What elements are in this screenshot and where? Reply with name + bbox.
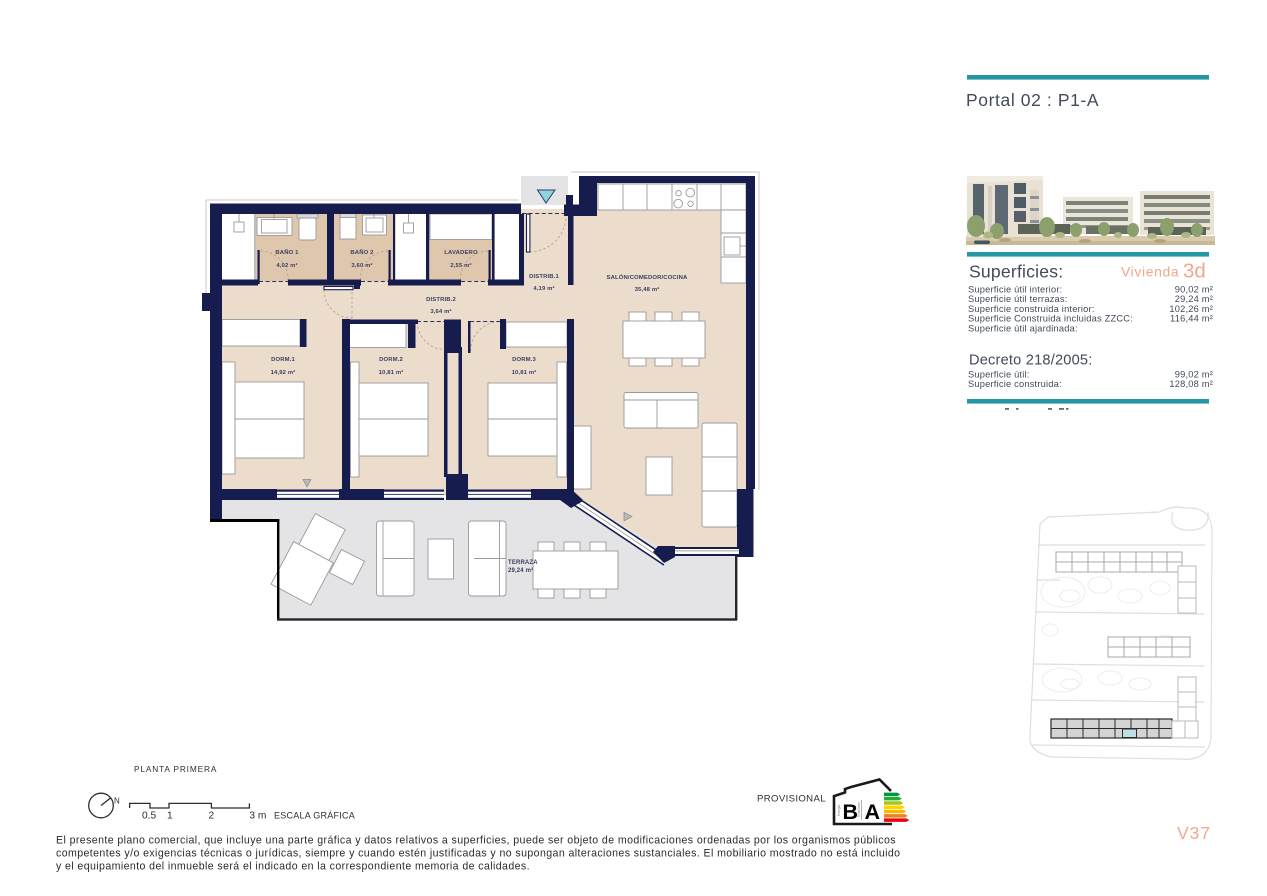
svg-text:PROVISIONAL: PROVISIONAL (757, 794, 826, 805)
svg-text:BAÑO 1: BAÑO 1 (275, 249, 299, 256)
svg-text:DISTRIB.2: DISTRIB.2 (426, 297, 456, 303)
svg-text:10,81 m²: 10,81 m² (512, 369, 537, 376)
svg-text:Superficie construida interior: Superficie construida interior: (968, 304, 1095, 314)
svg-text:DORM.1: DORM.1 (271, 357, 295, 363)
svg-text:14,92 m²: 14,92 m² (271, 369, 296, 376)
svg-text:DORM.2: DORM.2 (379, 357, 403, 363)
svg-text:Superficies:: Superficies: (969, 262, 1063, 282)
svg-text:Superficie útil terrazas:: Superficie útil terrazas: (968, 294, 1068, 304)
svg-text:BAÑO 2: BAÑO 2 (350, 249, 374, 256)
svg-text:TERRAZA: TERRAZA (508, 560, 538, 566)
svg-text:A: A (865, 800, 881, 824)
svg-text:10,81 m²: 10,81 m² (379, 369, 404, 376)
svg-text:Superficie Construida incluida: Superficie Construida incluidas ZZCC: (968, 314, 1133, 324)
svg-text:DORM.3: DORM.3 (512, 357, 536, 363)
svg-text:Emisiones: Emisiones (857, 802, 861, 817)
svg-text:N: N (114, 797, 120, 806)
svg-text:ESCALA GRÁFICA: ESCALA GRÁFICA (274, 811, 355, 821)
svg-text:competentes y/o exigencias téc: competentes y/o exigencias técnicas o ju… (56, 848, 900, 860)
svg-text:Portal 02 : P1-A: Portal 02 : P1-A (966, 90, 1099, 110)
svg-text:PLANTA PRIMERA: PLANTA PRIMERA (134, 764, 217, 774)
svg-text:3 m: 3 m (249, 811, 266, 822)
svg-text:LAVADERO: LAVADERO (444, 250, 478, 256)
svg-text:90,02 m²: 90,02 m² (1175, 284, 1213, 294)
svg-text:Decreto 218/2005:: Decreto 218/2005: (969, 352, 1092, 368)
svg-text:35,48 m²: 35,48 m² (635, 286, 660, 293)
svg-text:128,08 m²: 128,08 m² (1169, 379, 1213, 389)
svg-text:SALÓN/COMEDOR/COCINA: SALÓN/COMEDOR/COCINA (607, 273, 688, 281)
svg-text:Superficie útil ajardinada:: Superficie útil ajardinada: (968, 324, 1078, 334)
svg-text:4,19 m²: 4,19 m² (533, 285, 554, 292)
svg-text:2: 2 (209, 811, 215, 822)
svg-text:Energía: Energía (837, 805, 841, 816)
svg-text:102,26 m²: 102,26 m² (1169, 304, 1213, 314)
svg-text:29,24 m²: 29,24 m² (1175, 294, 1213, 304)
svg-text:DISTRIB.1: DISTRIB.1 (529, 274, 559, 280)
svg-text:3,64 m²: 3,64 m² (430, 308, 451, 315)
svg-text:B: B (843, 800, 859, 824)
svg-text:29,24 m²: 29,24 m² (508, 567, 533, 574)
svg-text:1: 1 (167, 811, 173, 822)
svg-text:Vivienda: Vivienda (1121, 264, 1179, 280)
svg-text:3,60 m²: 3,60 m² (351, 262, 372, 269)
svg-text:2,55 m²: 2,55 m² (450, 262, 471, 269)
svg-text:116,44 m²: 116,44 m² (1170, 314, 1213, 324)
svg-text:4,02 m²: 4,02 m² (276, 262, 297, 269)
svg-text:Superficie útil interior:: Superficie útil interior: (968, 284, 1062, 294)
svg-text:y el equipamiento del inmueble: y el equipamiento del inmueble será el i… (56, 861, 530, 873)
svg-text:El presente plano comercial, q: El presente plano comercial, que incluye… (56, 835, 896, 847)
svg-text:0.5: 0.5 (142, 811, 156, 822)
svg-text:V37: V37 (1177, 823, 1211, 843)
svg-text:Superficie construida:: Superficie construida: (968, 379, 1062, 389)
svg-text:3d: 3d (1183, 260, 1206, 283)
